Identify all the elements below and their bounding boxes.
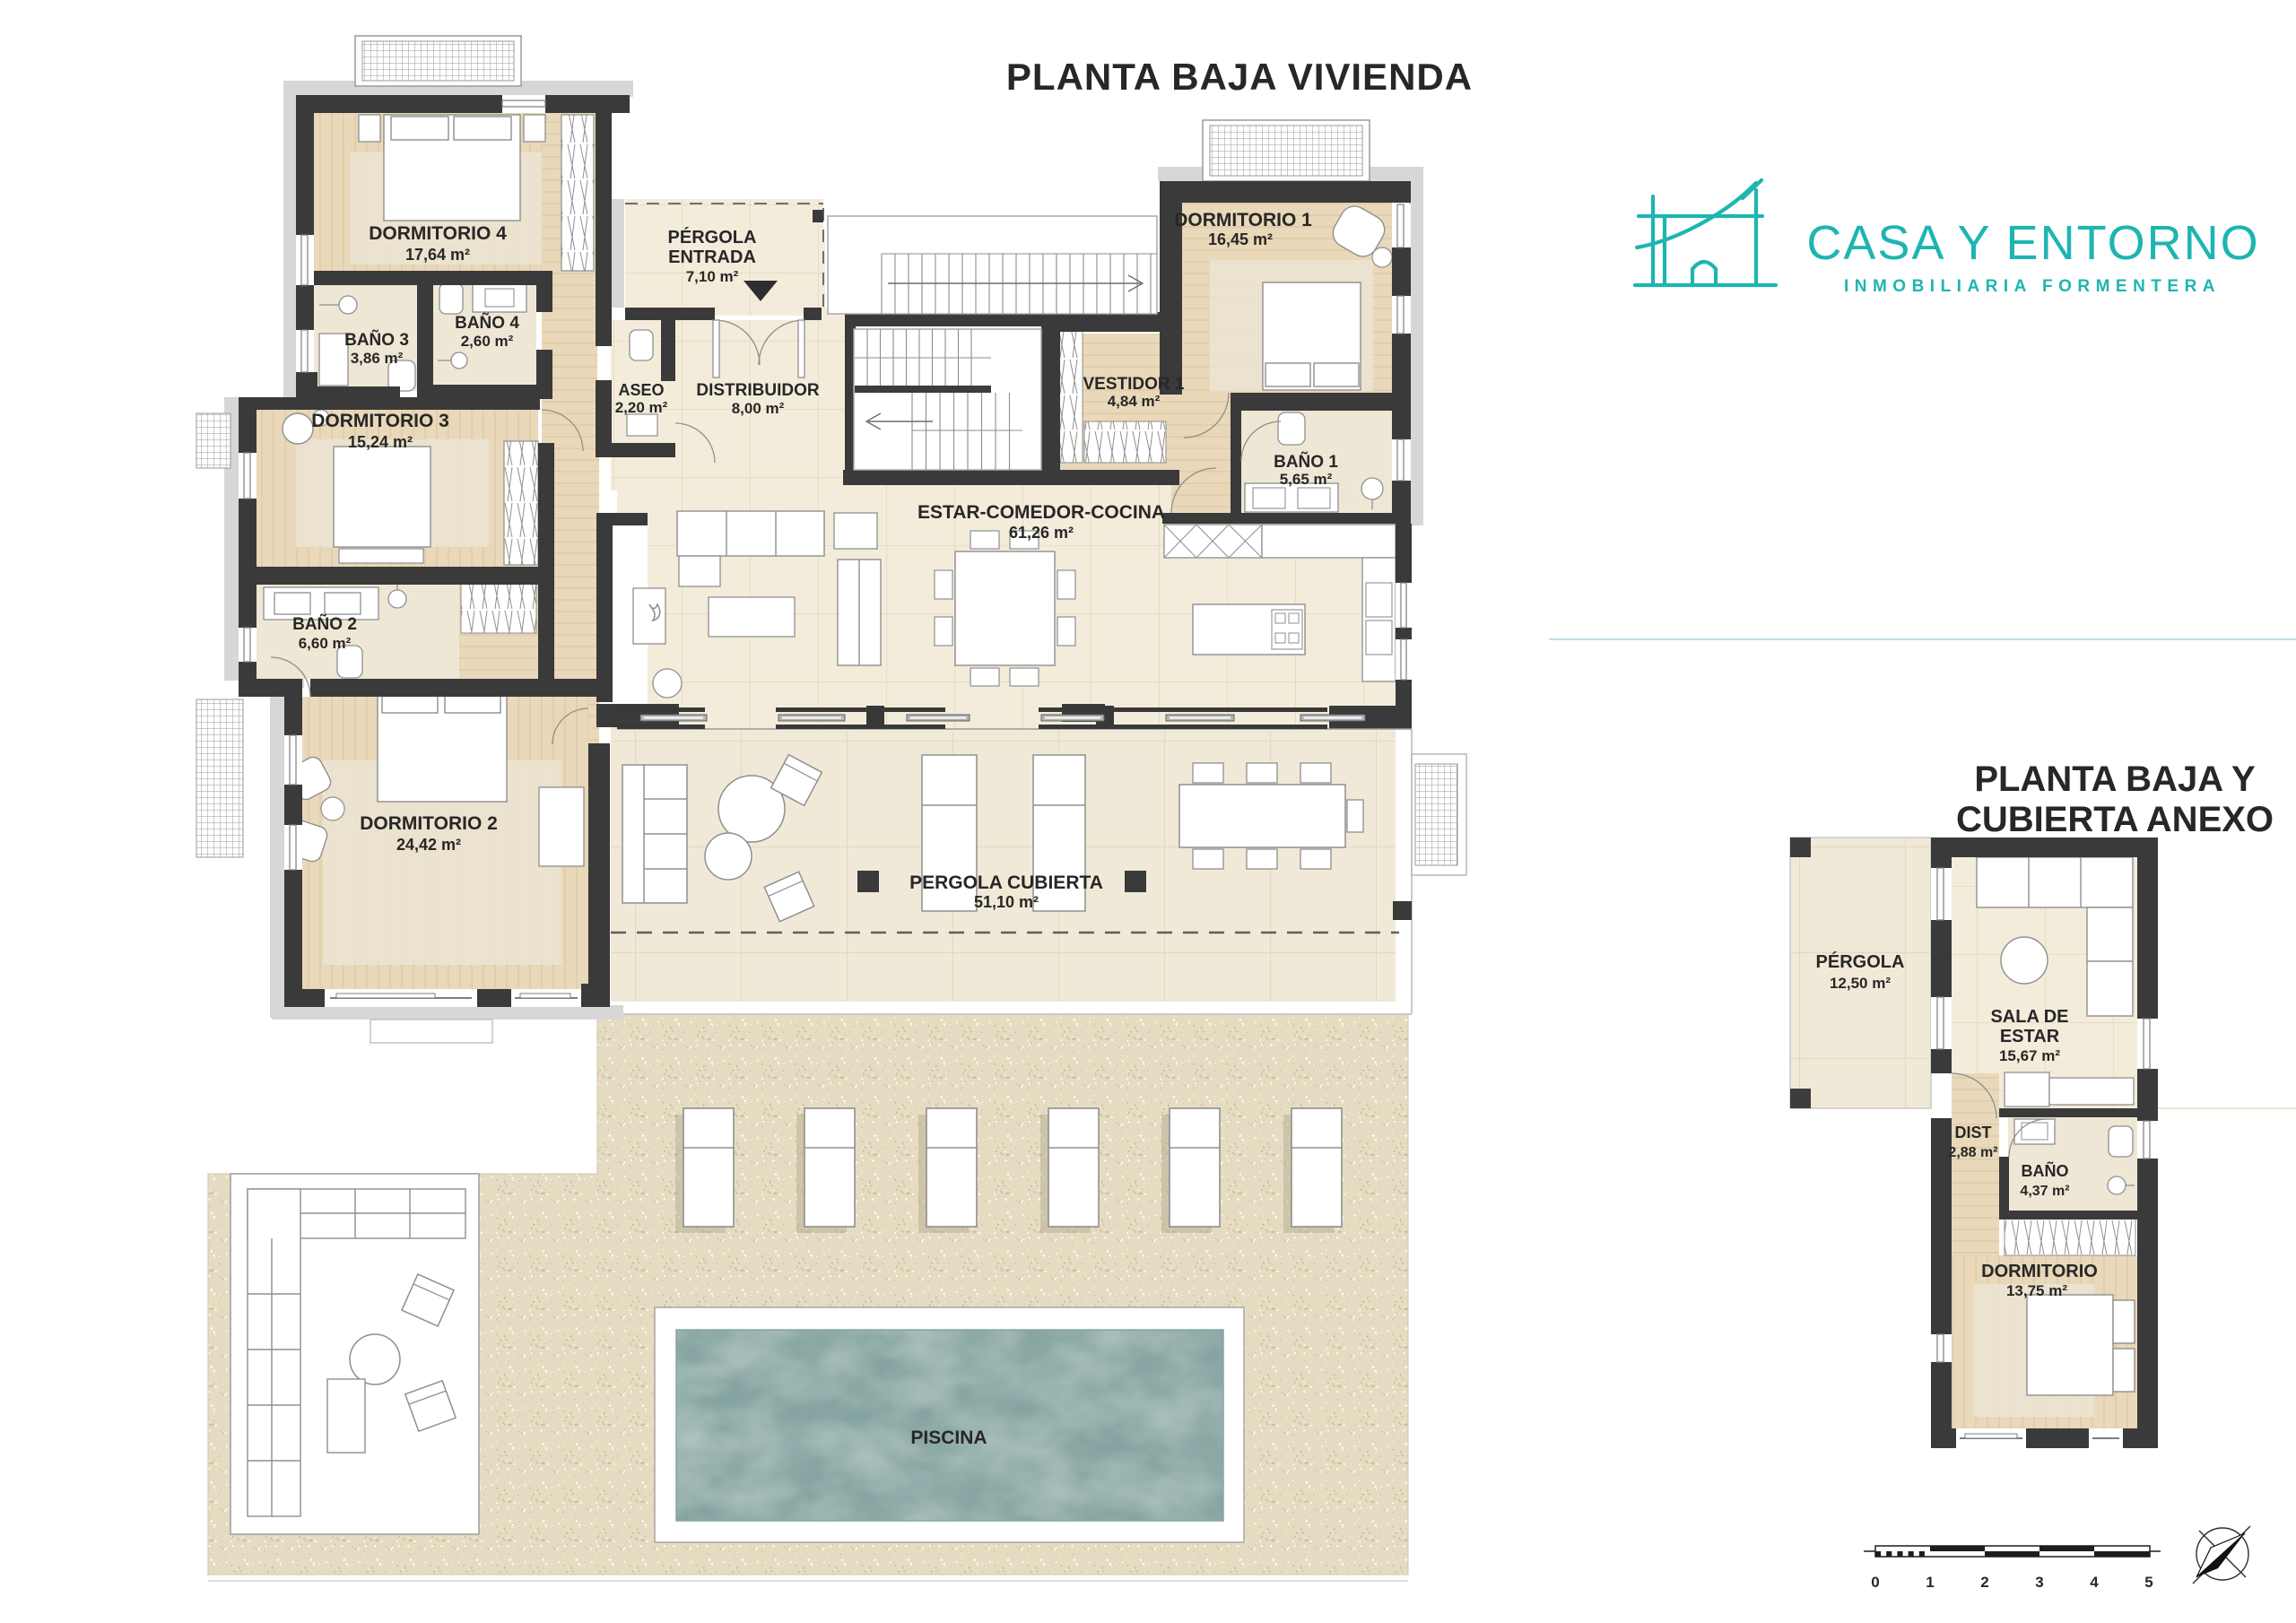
svg-text:5: 5	[2144, 1574, 2152, 1591]
svg-text:PÉRGOLA: PÉRGOLA	[1816, 951, 1905, 972]
svg-text:16,45 m²: 16,45 m²	[1208, 230, 1273, 248]
svg-text:61,26 m²: 61,26 m²	[1009, 524, 1074, 542]
svg-text:DORMITORIO 1: DORMITORIO 1	[1174, 210, 1312, 230]
svg-text:ESTAR-COMEDOR-COCINA: ESTAR-COMEDOR-COCINA	[918, 502, 1165, 523]
svg-text:0: 0	[1871, 1574, 1879, 1591]
svg-text:ENTRADA: ENTRADA	[668, 247, 756, 267]
svg-text:DORMITORIO 2: DORMITORIO 2	[360, 813, 498, 834]
svg-text:BAÑO 4: BAÑO 4	[455, 313, 519, 333]
svg-text:13,75 m²: 13,75 m²	[2006, 1282, 2067, 1299]
svg-text:INMOBILIARIA FORMENTERA: INMOBILIARIA FORMENTERA	[1844, 277, 2221, 296]
svg-text:2,20 m²: 2,20 m²	[615, 399, 668, 416]
svg-text:DIST: DIST	[1954, 1124, 1991, 1141]
svg-text:PERGOLA CUBIERTA: PERGOLA CUBIERTA	[909, 872, 1103, 893]
svg-text:DORMITORIO: DORMITORIO	[1981, 1262, 2098, 1281]
svg-text:5,65 m²: 5,65 m²	[1280, 471, 1333, 488]
svg-text:BAÑO 2: BAÑO 2	[292, 614, 357, 634]
svg-text:2,60 m²: 2,60 m²	[461, 333, 514, 350]
svg-text:4,84 m²: 4,84 m²	[1108, 393, 1161, 410]
svg-text:4,37 m²: 4,37 m²	[2020, 1184, 2069, 1199]
svg-text:7,10 m²: 7,10 m²	[686, 268, 739, 285]
svg-text:51,10 m²: 51,10 m²	[974, 893, 1039, 911]
svg-text:6,60 m²: 6,60 m²	[299, 635, 352, 652]
svg-text:17,64 m²: 17,64 m²	[405, 246, 470, 264]
svg-text:DORMITORIO 4: DORMITORIO 4	[369, 223, 507, 244]
svg-text:BAÑO: BAÑO	[2022, 1161, 2069, 1180]
svg-text:CUBIERTA ANEXO: CUBIERTA ANEXO	[1956, 800, 2274, 839]
svg-text:2: 2	[1980, 1574, 1988, 1591]
svg-text:DORMITORIO 3: DORMITORIO 3	[311, 411, 449, 431]
svg-text:3: 3	[2035, 1574, 2043, 1591]
svg-text:24,42 m²: 24,42 m²	[396, 836, 461, 854]
svg-text:BAÑO 3: BAÑO 3	[344, 330, 409, 350]
svg-text:ESTAR: ESTAR	[2000, 1027, 2060, 1046]
svg-text:BAÑO 1: BAÑO 1	[1274, 452, 1338, 472]
svg-text:PLANTA BAJA VIVIENDA: PLANTA BAJA VIVIENDA	[1006, 56, 1473, 98]
svg-text:4: 4	[2090, 1574, 2099, 1591]
svg-text:15,67 m²: 15,67 m²	[1999, 1047, 2060, 1064]
svg-text:PÉRGOLA: PÉRGOLA	[668, 227, 757, 247]
svg-text:PISCINA: PISCINA	[910, 1428, 987, 1448]
svg-text:3,86 m²: 3,86 m²	[351, 350, 404, 367]
svg-text:12,50 m²: 12,50 m²	[1830, 975, 1891, 992]
svg-text:2,88 m²: 2,88 m²	[1948, 1145, 1997, 1160]
svg-text:8,00 m²: 8,00 m²	[732, 400, 785, 417]
svg-text:DISTRIBUIDOR: DISTRIBUIDOR	[696, 381, 820, 400]
svg-text:VESTIDOR 1: VESTIDOR 1	[1083, 375, 1185, 394]
svg-text:PLANTA BAJA Y: PLANTA BAJA Y	[1974, 759, 2256, 799]
svg-text:CASA Y ENTORNO: CASA Y ENTORNO	[1806, 216, 2259, 270]
svg-text:15,24 m²: 15,24 m²	[348, 433, 413, 451]
svg-text:1: 1	[1926, 1574, 1934, 1591]
svg-text:ASEO: ASEO	[618, 381, 664, 399]
svg-text:SALA DE: SALA DE	[1990, 1007, 2068, 1027]
